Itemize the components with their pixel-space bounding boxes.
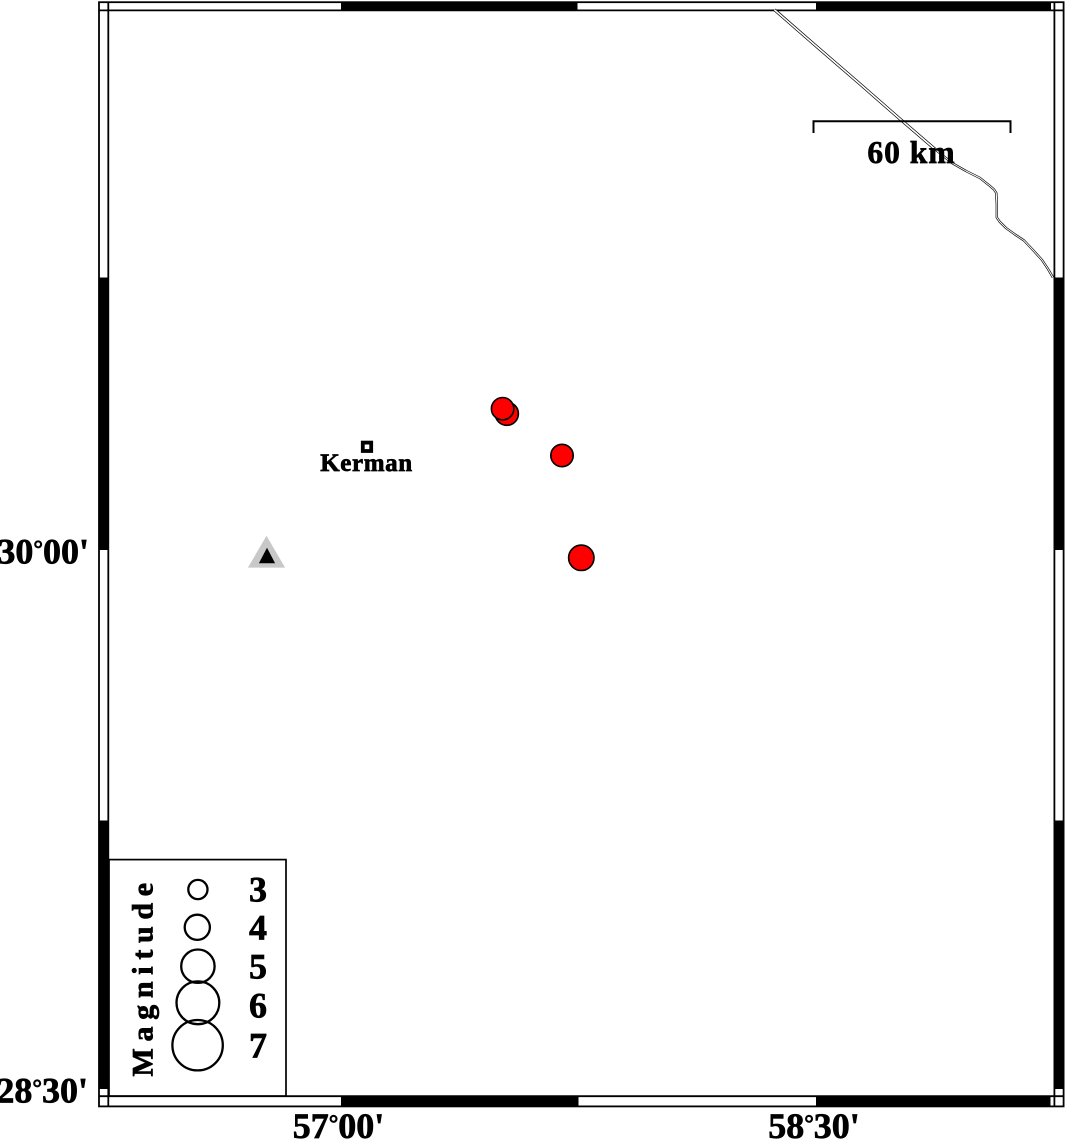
svg-text:4: 4 bbox=[249, 908, 267, 948]
svg-text:3: 3 bbox=[249, 870, 267, 910]
svg-text:M a g n i t u d e: M a g n i t u d e bbox=[127, 883, 160, 1076]
svg-text:57°00': 57°00' bbox=[293, 1106, 385, 1145]
svg-text:6: 6 bbox=[249, 985, 267, 1025]
svg-text:5: 5 bbox=[249, 946, 267, 986]
svg-text:60 km: 60 km bbox=[867, 135, 955, 170]
svg-text:58°30': 58°30' bbox=[768, 1106, 860, 1145]
svg-text:Kerman: Kerman bbox=[320, 450, 412, 477]
svg-text:30°00': 30°00' bbox=[0, 532, 89, 572]
svg-text:28°30': 28°30' bbox=[0, 1070, 88, 1110]
svg-text:7: 7 bbox=[249, 1025, 267, 1065]
